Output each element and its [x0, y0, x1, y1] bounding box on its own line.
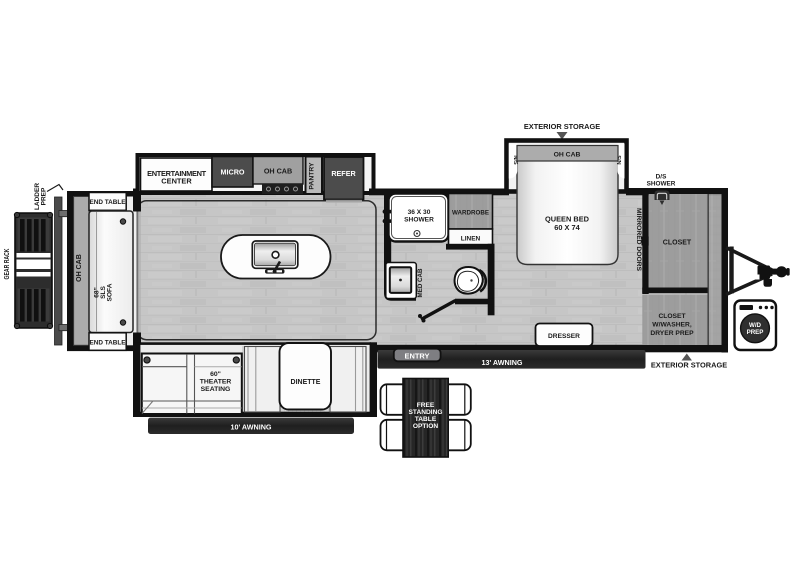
- svg-text:ENTRY: ENTRY: [405, 354, 430, 361]
- svg-text:W/WASHER,: W/WASHER,: [652, 322, 692, 329]
- svg-text:OH CAB: OH CAB: [554, 152, 581, 159]
- svg-text:PANTRY: PANTRY: [309, 162, 316, 190]
- svg-text:EXTERIOR STORAGE: EXTERIOR STORAGE: [524, 122, 600, 131]
- svg-text:SHOWER: SHOWER: [404, 216, 434, 223]
- svg-text:13' AWNING: 13' AWNING: [482, 358, 523, 367]
- svg-text:DRYER PREP: DRYER PREP: [650, 330, 694, 337]
- svg-text:OPTION: OPTION: [413, 423, 439, 430]
- svg-text:THEATER: THEATER: [200, 379, 232, 386]
- svg-text:CLOSET: CLOSET: [658, 313, 686, 320]
- svg-text:REFER: REFER: [331, 169, 356, 178]
- svg-text:SEATING: SEATING: [201, 386, 231, 393]
- svg-text:TABLE: TABLE: [415, 416, 437, 423]
- svg-text:DRESSER: DRESSER: [548, 333, 580, 340]
- svg-text:DINETTE: DINETTE: [291, 379, 321, 386]
- svg-text:WARDROBE: WARDROBE: [452, 210, 490, 217]
- svg-text:60 X 74: 60 X 74: [554, 223, 580, 232]
- svg-text:MED CAB: MED CAB: [417, 268, 424, 297]
- svg-text:10' AWNING: 10' AWNING: [231, 423, 272, 432]
- svg-text:OH CAB: OH CAB: [264, 167, 292, 176]
- svg-text:D/S: D/S: [656, 174, 667, 181]
- svg-text:LINEN: LINEN: [461, 236, 481, 243]
- svg-text:MIRRORED DOORS: MIRRORED DOORS: [635, 208, 642, 272]
- svg-text:W/D: W/D: [749, 322, 762, 329]
- svg-text:OH CAB: OH CAB: [76, 254, 83, 282]
- svg-text:PREP: PREP: [747, 329, 764, 336]
- svg-text:END TABLE: END TABLE: [89, 199, 126, 206]
- svg-text:CENTER: CENTER: [161, 177, 192, 186]
- svg-text:END TABLE: END TABLE: [89, 340, 126, 347]
- svg-text:60": 60": [210, 371, 221, 378]
- svg-text:MICRO: MICRO: [221, 168, 245, 177]
- svg-text:FREE: FREE: [417, 402, 435, 409]
- svg-text:36 X 30: 36 X 30: [408, 209, 431, 216]
- svg-text:EXTERIOR STORAGE: EXTERIOR STORAGE: [651, 361, 727, 370]
- svg-text:SHOWER: SHOWER: [647, 181, 676, 188]
- svg-text:CLOSET: CLOSET: [663, 240, 692, 247]
- svg-text:GEAR RACK: GEAR RACK: [2, 248, 11, 280]
- svg-text:STANDING: STANDING: [409, 409, 443, 416]
